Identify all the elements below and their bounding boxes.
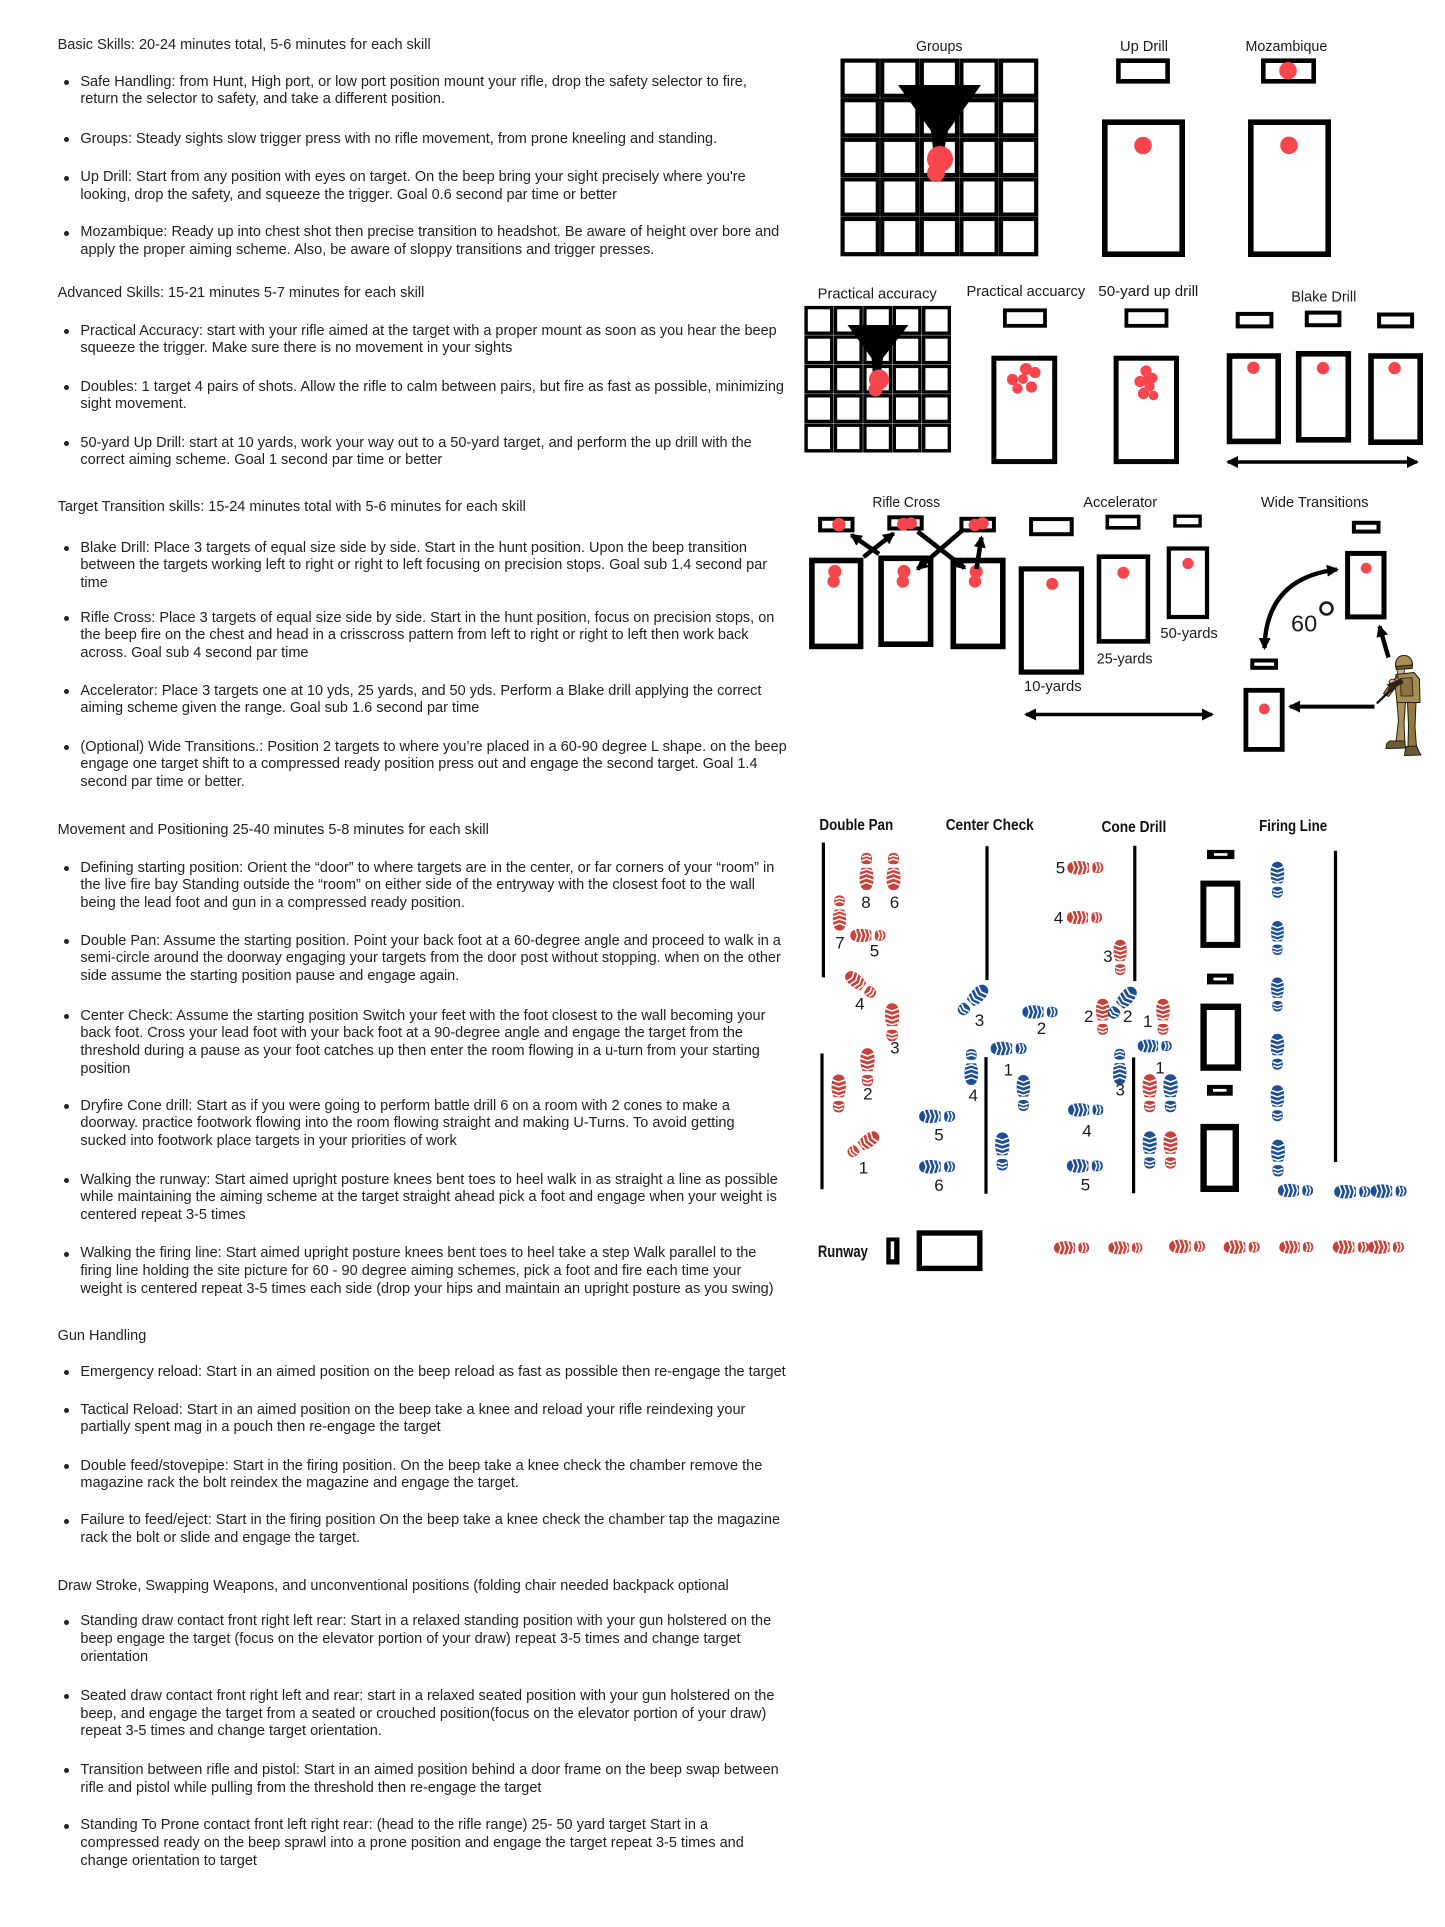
svg-text:Blake Drill: Blake Drill (1291, 290, 1356, 306)
svg-text:4: 4 (855, 995, 864, 1014)
svg-text:10-yards: 10-yards (1024, 679, 1082, 695)
svg-text:5: 5 (934, 1126, 943, 1145)
svg-text:Firing Line: Firing Line (1259, 818, 1327, 835)
svg-text:2: 2 (1084, 1007, 1093, 1026)
svg-text:60: 60 (1291, 610, 1317, 636)
svg-text:5: 5 (1081, 1176, 1090, 1195)
svg-text:Cone Drill: Cone Drill (1102, 819, 1167, 836)
svg-text:6: 6 (890, 893, 899, 912)
svg-text:3: 3 (1115, 1081, 1124, 1100)
svg-text:3: 3 (890, 1039, 899, 1058)
svg-text:3: 3 (975, 1011, 984, 1030)
svg-text:1: 1 (1003, 1061, 1012, 1080)
svg-text:Runway: Runway (818, 1243, 869, 1261)
svg-text:Practical accuarcy: Practical accuarcy (967, 284, 1086, 300)
svg-text:3: 3 (1103, 947, 1112, 966)
svg-text:5: 5 (870, 942, 879, 961)
svg-text:2: 2 (863, 1085, 872, 1104)
svg-text:1: 1 (1155, 1059, 1164, 1078)
svg-text:8: 8 (861, 893, 870, 912)
svg-text:4: 4 (1082, 1122, 1091, 1141)
svg-text:Rifle Cross: Rifle Cross (872, 495, 940, 511)
svg-text:Mozambique: Mozambique (1246, 39, 1328, 55)
svg-text:4: 4 (968, 1086, 977, 1105)
svg-text:Groups: Groups (916, 39, 963, 55)
svg-text:Accelerator: Accelerator (1083, 495, 1157, 511)
svg-text:Practical accuracy: Practical accuracy (818, 287, 938, 303)
svg-text:Up Drill: Up Drill (1120, 39, 1168, 55)
svg-text:6: 6 (934, 1176, 943, 1195)
svg-text:1: 1 (1143, 1012, 1152, 1031)
svg-text:1: 1 (859, 1159, 868, 1178)
svg-text:Center Check: Center Check (946, 817, 1034, 834)
svg-text:7: 7 (835, 934, 844, 953)
svg-text:5: 5 (1056, 859, 1065, 878)
svg-text:2: 2 (1037, 1019, 1046, 1038)
svg-text:50-yards: 50-yards (1160, 626, 1217, 642)
svg-text:Wide Transitions: Wide Transitions (1261, 495, 1369, 511)
svg-text:25-yards: 25-yards (1097, 651, 1153, 667)
svg-text:50-yard up drill: 50-yard up drill (1098, 284, 1198, 300)
svg-text:2: 2 (1123, 1007, 1132, 1026)
svg-text:Double Pan: Double Pan (819, 817, 893, 834)
svg-text:4: 4 (1054, 909, 1063, 928)
